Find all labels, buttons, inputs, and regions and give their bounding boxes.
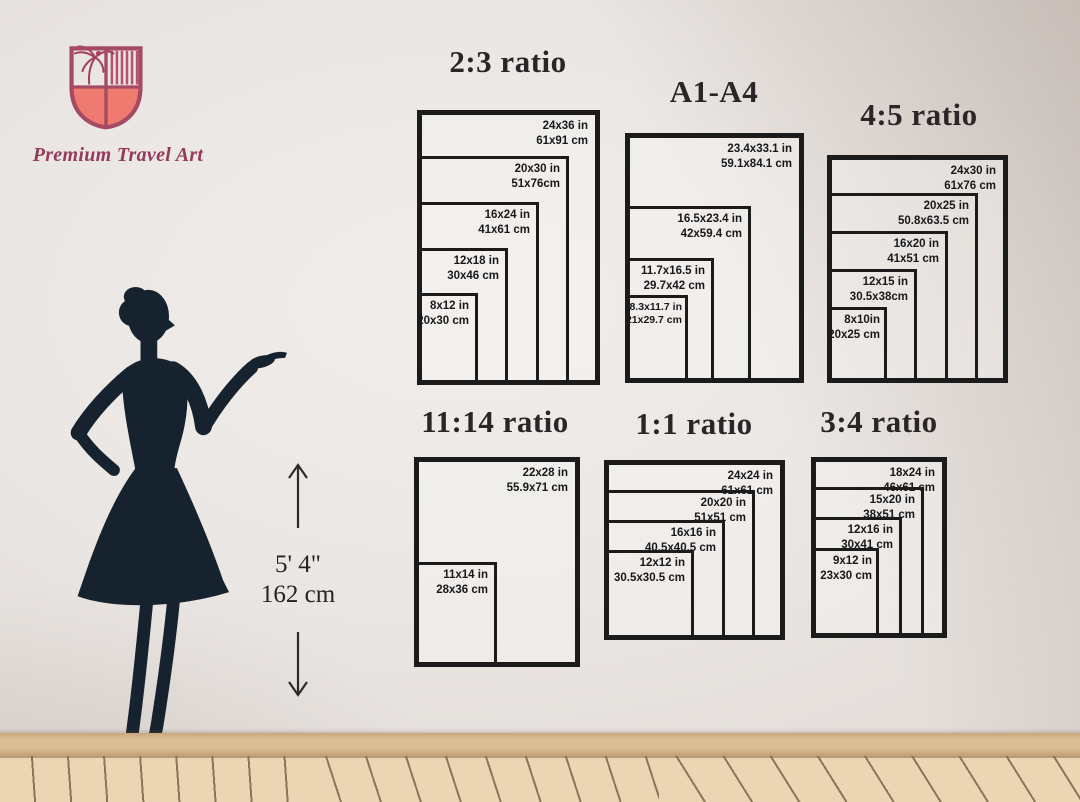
face-profile xyxy=(163,316,175,332)
right-forearm xyxy=(203,368,251,429)
chart-title-1-1: 1:1 ratio xyxy=(635,406,752,442)
baseboard xyxy=(0,733,1080,756)
height-feet: 5' 4" xyxy=(275,550,321,580)
floor-planks-middle xyxy=(302,756,658,802)
left-upper-arm xyxy=(79,374,132,433)
palm-tree-icon xyxy=(75,47,114,84)
floor-edge-line xyxy=(0,756,1080,758)
brand-name: Premium Travel Art xyxy=(18,144,218,167)
size-chart-4-5: 24x30 in61x76 cm 20x25 in50.8x63.5 cm 16… xyxy=(827,155,1008,383)
size-box-9x12: 9x12 in23x30 cm xyxy=(811,548,879,638)
size-box-a4: 8.3x11.7 in21x29.7 cm xyxy=(625,295,688,383)
size-guide-page: { "brand": {"name": "Premium Travel Art"… xyxy=(0,0,1080,802)
chart-title-4-5: 4:5 ratio xyxy=(860,97,977,133)
floor-planks-right xyxy=(659,756,1080,802)
size-box-8x10: 8x10in20x25 cm xyxy=(827,307,887,383)
size-chart-2-3: 24x36 in61x91 cm 20x30 in51x76cm 16x24 i… xyxy=(417,110,600,385)
chart-title-3-4: 3:4 ratio xyxy=(820,404,937,440)
size-box-8x12: 8x12 in20x30 cm xyxy=(417,293,478,385)
chart-title-2-3: 2:3 ratio xyxy=(449,44,566,80)
size-chart-1-1: 24x24 in61x61 cm 20x20 in51x51 cm 16x16 … xyxy=(604,460,785,640)
size-chart-3-4: 18x24 in46x61 cm 15x20 in38x51 cm 12x16 … xyxy=(811,457,947,638)
arrow-up-icon xyxy=(285,462,311,530)
right-leg xyxy=(151,584,175,749)
height-indicator: 5' 4" 162 cm xyxy=(250,462,346,698)
height-cm: 162 cm xyxy=(261,580,335,610)
brand-shield-logo xyxy=(64,42,148,132)
left-forearm-on-hip xyxy=(79,433,114,470)
size-box-11x14: 11x14 in28x36 cm xyxy=(414,562,497,667)
floor-planks-left xyxy=(0,756,302,802)
chart-title-11-14: 11:14 ratio xyxy=(421,404,569,440)
size-box-12x12: 12x12 in30.5x30.5 cm xyxy=(604,550,694,640)
wood-floor xyxy=(0,756,1080,802)
bird-icon xyxy=(96,51,101,56)
size-chart-11-14: 22x28 in55.9x71 cm 11x14 in28x36 cm xyxy=(414,457,580,667)
size-chart-a1-a4: 23.4x33.1 in59.1x84.1 cm 16.5x23.4 in42x… xyxy=(625,133,804,383)
shield-stripes xyxy=(112,51,137,85)
chart-title-a1-a4: A1-A4 xyxy=(670,74,759,110)
arrow-down-icon xyxy=(285,630,311,698)
